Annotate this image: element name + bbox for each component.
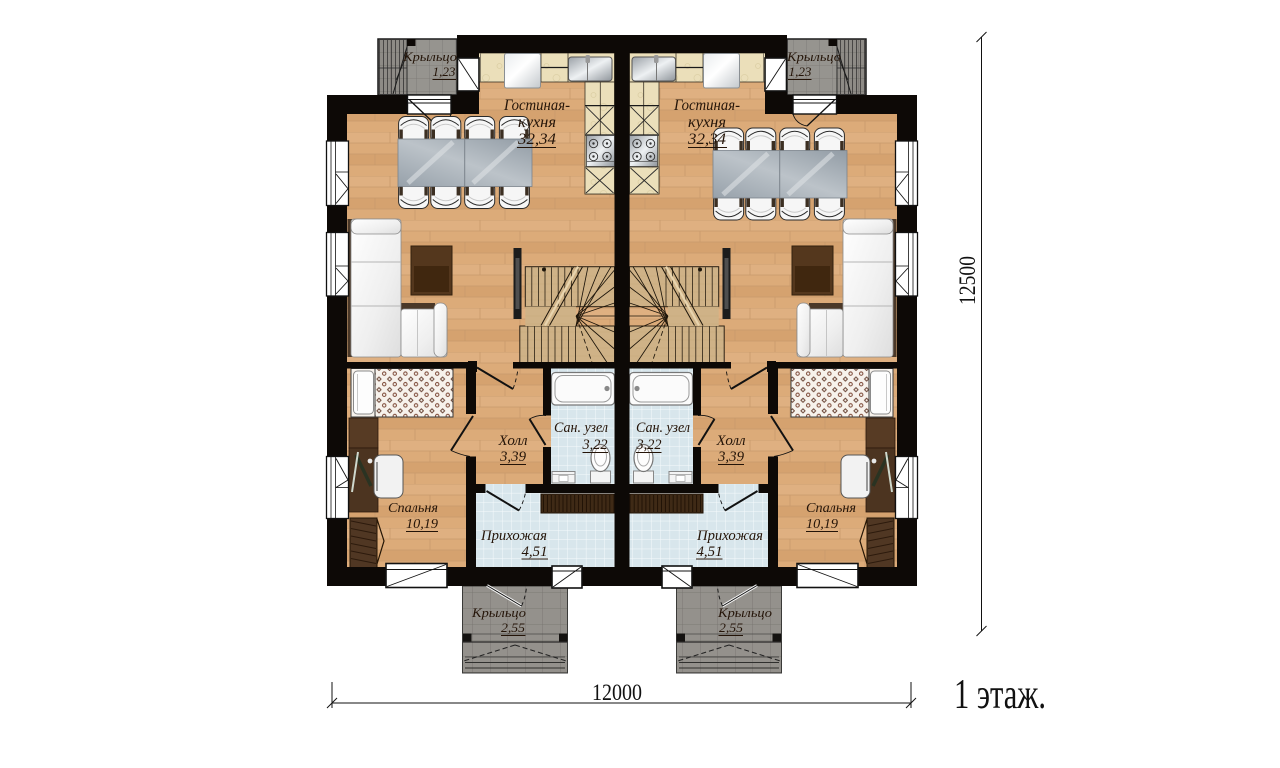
svg-text:Крыльцо: Крыльцо <box>786 50 841 64</box>
svg-text:32,34: 32,34 <box>517 131 556 148</box>
svg-text:12000: 12000 <box>592 680 642 705</box>
svg-text:4,51: 4,51 <box>522 544 548 560</box>
svg-text:10,19: 10,19 <box>406 517 438 532</box>
svg-text:Спальня: Спальня <box>388 501 438 516</box>
svg-text:Крыльцо: Крыльцо <box>402 50 457 64</box>
svg-text:10,19: 10,19 <box>806 517 838 532</box>
svg-text:12500: 12500 <box>955 256 980 305</box>
svg-text:Крыльцо: Крыльцо <box>717 606 772 620</box>
svg-text:Сан. узел: Сан. узел <box>554 420 608 436</box>
svg-text:2,55: 2,55 <box>719 621 743 635</box>
svg-text:32,34: 32,34 <box>687 131 726 148</box>
svg-text:Гостиная-: Гостиная- <box>503 97 570 114</box>
svg-text:Сан. узел: Сан. узел <box>636 420 690 436</box>
svg-text:3,39: 3,39 <box>499 449 527 465</box>
svg-text:1,23: 1,23 <box>789 65 812 79</box>
svg-text:1 этаж.: 1 этаж. <box>954 672 1046 718</box>
svg-text:3,39: 3,39 <box>717 449 745 465</box>
svg-text:Гостиная-: Гостиная- <box>673 97 740 114</box>
svg-text:Прихожая: Прихожая <box>696 528 763 544</box>
svg-text:кухня: кухня <box>688 114 726 131</box>
svg-text:кухня: кухня <box>518 114 556 131</box>
svg-text:1,23: 1,23 <box>433 65 456 79</box>
svg-text:2,55: 2,55 <box>501 621 525 635</box>
svg-text:Спальня: Спальня <box>806 501 856 516</box>
svg-text:Крыльцо: Крыльцо <box>471 606 526 620</box>
svg-text:Холл: Холл <box>715 433 745 449</box>
svg-text:3,22: 3,22 <box>582 437 608 453</box>
svg-text:3,22: 3,22 <box>636 437 662 453</box>
svg-text:4,51: 4,51 <box>697 544 723 560</box>
svg-text:Холл: Холл <box>497 433 527 449</box>
svg-text:Прихожая: Прихожая <box>480 528 547 544</box>
